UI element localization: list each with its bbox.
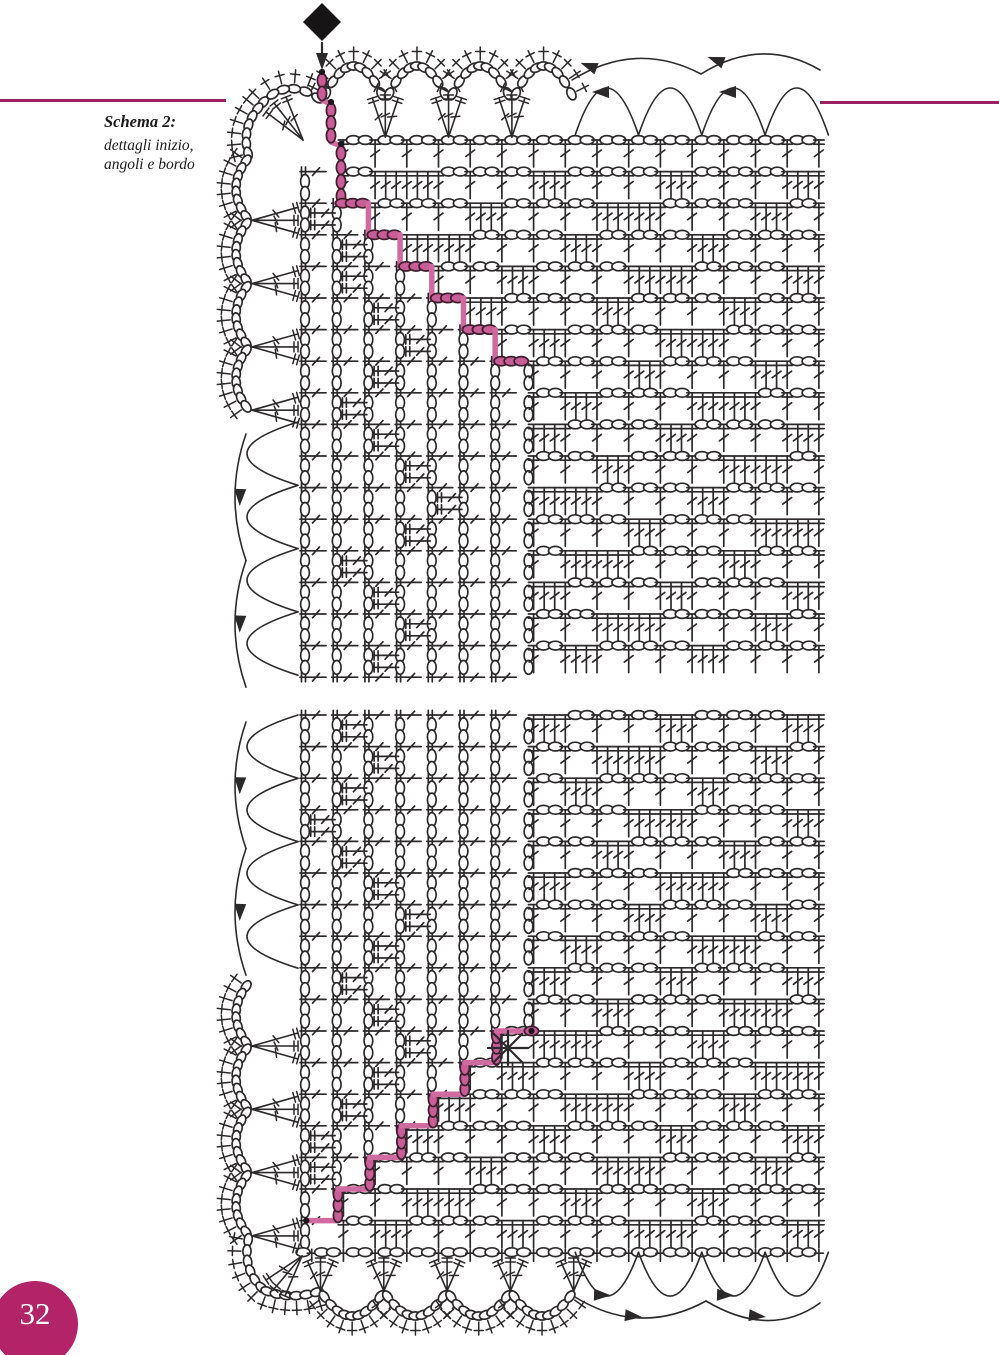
bottom-corner-panel xyxy=(296,710,824,1261)
page-number: 32 xyxy=(20,1296,51,1332)
pink-step-line-top xyxy=(317,69,528,366)
magazine-page: Schema 2: dettagli inizio, angoli e bord… xyxy=(0,0,999,1355)
top-corner-panel xyxy=(300,136,824,682)
crochet-diagram xyxy=(0,0,999,1355)
start-diamond-marker xyxy=(303,3,341,70)
